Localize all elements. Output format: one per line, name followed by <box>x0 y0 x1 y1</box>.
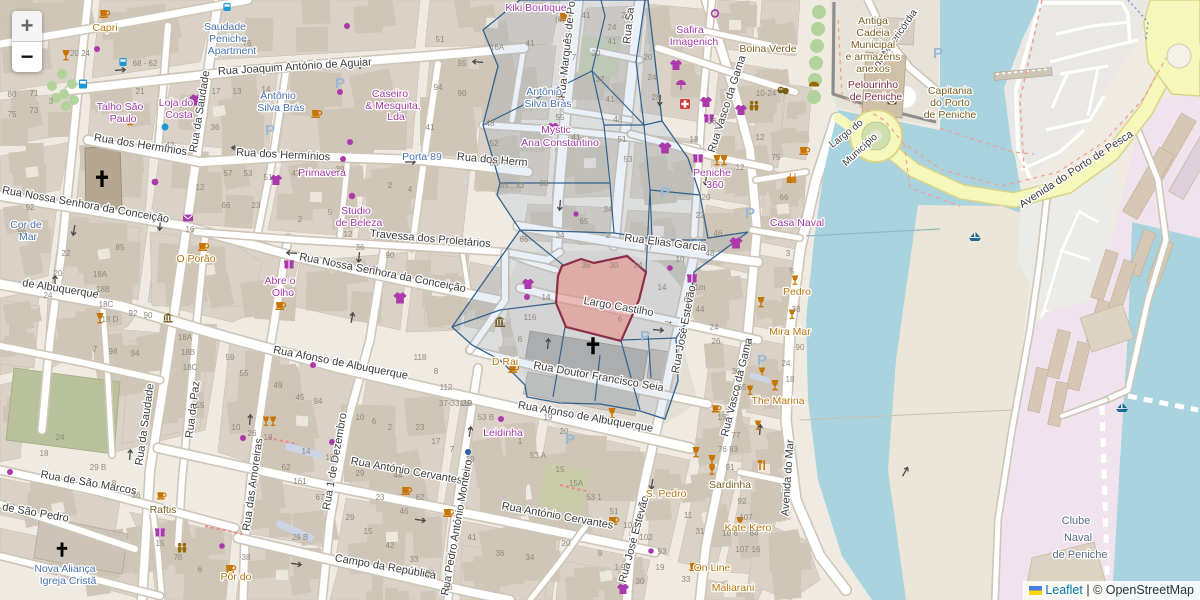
svg-text:29: 29 <box>346 513 355 522</box>
svg-text:55: 55 <box>240 369 249 378</box>
svg-text:6: 6 <box>518 335 523 344</box>
svg-text:18C: 18C <box>99 300 114 309</box>
svg-text:P: P <box>265 122 275 139</box>
svg-text:18C: 18C <box>183 363 198 372</box>
svg-text:Boina Verde: Boina Verde <box>739 43 796 55</box>
svg-text:8: 8 <box>112 479 117 488</box>
svg-text:30: 30 <box>732 367 741 376</box>
svg-text:24: 24 <box>44 291 53 300</box>
svg-text:e armazéns: e armazéns <box>846 51 901 63</box>
svg-text:38: 38 <box>242 553 251 562</box>
svg-text:Loja do: Loja do <box>159 97 194 109</box>
svg-text:Clube: Clube <box>1062 515 1091 527</box>
svg-text:36: 36 <box>132 491 141 500</box>
svg-text:57: 57 <box>224 169 233 178</box>
svg-text:Raftis: Raftis <box>150 504 177 516</box>
svg-text:360: 360 <box>706 179 724 191</box>
svg-text:do Porto: do Porto <box>930 97 970 109</box>
svg-text:On Line: On Line <box>694 562 731 574</box>
svg-text:15: 15 <box>156 539 165 548</box>
svg-text:1: 1 <box>518 437 523 446</box>
svg-text:33: 33 <box>682 575 691 584</box>
svg-text:12: 12 <box>756 133 765 142</box>
svg-text:75: 75 <box>772 153 781 162</box>
svg-text:34: 34 <box>604 205 613 214</box>
svg-text:Saudade: Saudade <box>204 21 246 33</box>
svg-text:76 83: 76 83 <box>718 445 739 454</box>
svg-text:42: 42 <box>166 141 175 150</box>
svg-text:21: 21 <box>136 87 145 96</box>
svg-text:80: 80 <box>8 90 17 99</box>
svg-text:41: 41 <box>572 133 581 142</box>
svg-text:Peniche: Peniche <box>209 33 247 45</box>
svg-text:44: 44 <box>696 305 705 314</box>
svg-text:Porta 89: Porta 89 <box>402 151 442 163</box>
svg-text:Capri: Capri <box>92 22 117 34</box>
svg-text:20: 20 <box>644 53 653 62</box>
svg-text:18: 18 <box>264 433 273 442</box>
svg-text:2: 2 <box>606 231 611 240</box>
svg-text:Pelourinho: Pelourinho <box>848 79 898 91</box>
svg-text:Igreja Cristã: Igreja Cristã <box>40 575 97 587</box>
svg-text:98: 98 <box>109 347 118 356</box>
svg-text:Nova Aliança: Nova Aliança <box>34 563 95 575</box>
svg-text:104: 104 <box>623 521 637 530</box>
svg-text:Cadeia: Cadeia <box>856 27 889 39</box>
svg-text:de Beleza: de Beleza <box>336 217 383 229</box>
svg-text:18B: 18B <box>96 285 110 294</box>
svg-text:107: 107 <box>735 545 749 554</box>
svg-text:35 , 33: 35 , 33 <box>500 181 525 190</box>
svg-text:Kiki Boutique: Kiki Boutique <box>505 2 566 14</box>
svg-text:de Peniche: de Peniche <box>924 109 977 121</box>
svg-text:46: 46 <box>714 229 723 238</box>
svg-text:P: P <box>660 184 670 201</box>
svg-text:90: 90 <box>386 251 395 260</box>
svg-text:41: 41 <box>426 123 435 132</box>
svg-text:31: 31 <box>696 527 705 536</box>
svg-text:30: 30 <box>610 261 619 270</box>
svg-text:52: 52 <box>490 139 499 148</box>
svg-text:85: 85 <box>116 243 125 252</box>
svg-text:65: 65 <box>490 159 499 168</box>
svg-text:Sardinha: Sardinha <box>709 479 751 491</box>
svg-text:95: 95 <box>458 59 467 68</box>
svg-text:110: 110 <box>460 399 473 408</box>
svg-text:41: 41 <box>526 39 535 48</box>
svg-text:Olho: Olho <box>272 287 294 299</box>
svg-text:24: 24 <box>648 73 657 82</box>
svg-text:12: 12 <box>736 163 745 172</box>
svg-text:Pedro: Pedro <box>783 286 811 298</box>
svg-text:37: 37 <box>596 75 605 84</box>
svg-text:90: 90 <box>458 89 467 98</box>
svg-text:36: 36 <box>211 123 220 132</box>
svg-text:14: 14 <box>302 447 311 456</box>
svg-text:Pôr do: Pôr do <box>221 571 252 583</box>
svg-text:6: 6 <box>618 315 623 324</box>
svg-text:20 24: 20 24 <box>70 49 91 58</box>
svg-text:7: 7 <box>572 53 577 62</box>
svg-text:11: 11 <box>684 511 693 520</box>
svg-text:17: 17 <box>432 437 441 446</box>
svg-text:33: 33 <box>410 555 419 564</box>
svg-text:36: 36 <box>582 261 591 270</box>
svg-text:94: 94 <box>131 349 140 358</box>
svg-text:22: 22 <box>62 249 71 258</box>
svg-text:62: 62 <box>282 463 291 472</box>
svg-text:4: 4 <box>408 185 413 194</box>
svg-text:2: 2 <box>388 423 393 432</box>
svg-text:28: 28 <box>652 93 661 102</box>
svg-text:→: → <box>662 314 675 328</box>
svg-text:47: 47 <box>292 169 301 178</box>
svg-text:P: P <box>335 75 345 92</box>
svg-text:18: 18 <box>40 449 49 458</box>
svg-text:Naval: Naval <box>1064 532 1092 544</box>
svg-text:20: 20 <box>560 427 569 436</box>
svg-text:48: 48 <box>614 115 623 124</box>
svg-text:36: 36 <box>792 305 801 314</box>
svg-text:16A: 16A <box>490 43 505 52</box>
svg-text:34: 34 <box>556 231 565 240</box>
svg-text:2: 2 <box>298 215 303 224</box>
svg-text:15: 15 <box>196 401 205 410</box>
svg-text:10: 10 <box>232 423 241 432</box>
svg-text:Abre o: Abre o <box>265 275 296 287</box>
svg-text:Studio: Studio <box>341 205 371 217</box>
svg-text:55: 55 <box>556 113 565 122</box>
svg-text:10: 10 <box>326 453 335 462</box>
svg-text:Municipal: Municipal <box>851 39 895 51</box>
svg-text:20: 20 <box>622 11 631 20</box>
svg-text:15A: 15A <box>569 479 584 488</box>
svg-text:18: 18 <box>690 135 699 144</box>
svg-text:9: 9 <box>598 549 603 558</box>
svg-text:92: 92 <box>738 497 747 506</box>
svg-text:53 1: 53 1 <box>586 493 602 502</box>
svg-text:161: 161 <box>293 477 307 486</box>
svg-text:92: 92 <box>129 309 138 318</box>
svg-text:65: 65 <box>580 217 589 226</box>
svg-text:64: 64 <box>750 529 759 538</box>
svg-text:59: 59 <box>226 353 235 362</box>
svg-text:94: 94 <box>434 83 443 92</box>
svg-text:15: 15 <box>556 465 565 474</box>
svg-text:14: 14 <box>658 283 667 292</box>
svg-text:34: 34 <box>526 553 535 562</box>
svg-text:65: 65 <box>520 235 529 244</box>
svg-text:24: 24 <box>608 23 617 32</box>
svg-text:17: 17 <box>212 87 221 96</box>
svg-text:93: 93 <box>658 547 667 556</box>
svg-text:66: 66 <box>222 201 231 210</box>
svg-text:19: 19 <box>656 563 665 572</box>
svg-text:19: 19 <box>466 455 475 464</box>
svg-text:67: 67 <box>316 493 325 502</box>
svg-text:24: 24 <box>710 323 719 332</box>
svg-text:41: 41 <box>582 11 591 20</box>
svg-text:20: 20 <box>54 269 63 278</box>
svg-text:Maliarani: Maliarani <box>712 582 755 594</box>
svg-text:6: 6 <box>198 565 203 574</box>
svg-text:18: 18 <box>786 375 795 384</box>
svg-text:75: 75 <box>243 39 252 48</box>
svg-text:6: 6 <box>372 417 377 426</box>
svg-text:53 B: 53 B <box>478 413 494 422</box>
svg-text:41: 41 <box>468 533 477 542</box>
svg-text:65: 65 <box>738 383 747 392</box>
svg-text:30: 30 <box>636 577 645 586</box>
svg-text:14: 14 <box>262 85 271 94</box>
svg-text:10-24: 10-24 <box>756 89 777 98</box>
svg-text:42: 42 <box>386 541 395 550</box>
svg-text:14: 14 <box>542 293 551 302</box>
svg-text:107: 107 <box>739 513 753 522</box>
svg-text:S. Pedro: S. Pedro <box>646 488 687 500</box>
svg-text:90: 90 <box>796 343 805 352</box>
svg-text:51: 51 <box>436 35 445 44</box>
svg-text:P: P <box>933 45 943 62</box>
svg-text:1m: 1m <box>694 283 705 292</box>
svg-text:20: 20 <box>592 49 601 58</box>
svg-text:Capitania: Capitania <box>928 85 973 97</box>
svg-text:de Peniche: de Peniche <box>1052 549 1107 561</box>
svg-text:16: 16 <box>186 225 195 234</box>
svg-text:10 6: 10 6 <box>722 529 738 538</box>
svg-text:16: 16 <box>708 117 717 126</box>
svg-text:30: 30 <box>426 569 435 578</box>
svg-text:20: 20 <box>702 193 711 202</box>
svg-text:23: 23 <box>416 423 425 432</box>
svg-text:90: 90 <box>144 311 153 320</box>
svg-text:P: P <box>757 352 767 369</box>
svg-text:53 A: 53 A <box>530 451 547 460</box>
svg-text:48: 48 <box>486 119 495 128</box>
svg-text:Talho São: Talho São <box>97 101 144 113</box>
svg-text:18A: 18A <box>178 333 193 342</box>
svg-text:29: 29 <box>356 469 365 478</box>
svg-text:Mira Mar: Mira Mar <box>769 326 811 338</box>
svg-text:71: 71 <box>30 89 39 98</box>
svg-text:20: 20 <box>562 539 571 548</box>
svg-text:46: 46 <box>400 507 409 516</box>
svg-text:51: 51 <box>618 135 627 144</box>
svg-text:36: 36 <box>496 549 505 558</box>
svg-text:77: 77 <box>732 431 741 440</box>
svg-text:53: 53 <box>624 155 633 164</box>
svg-text:102: 102 <box>639 533 653 542</box>
svg-text:12: 12 <box>344 230 353 239</box>
svg-text:10: 10 <box>676 255 685 264</box>
svg-text:118: 118 <box>414 353 427 362</box>
svg-text:1 9: 1 9 <box>614 563 626 572</box>
svg-text:29 B: 29 B <box>292 533 308 542</box>
svg-text:41: 41 <box>606 95 615 104</box>
svg-text:29 B: 29 B <box>90 463 106 472</box>
svg-text:24: 24 <box>782 359 791 368</box>
svg-text:Silva Brás: Silva Brás <box>257 102 304 114</box>
svg-text:24: 24 <box>56 433 65 442</box>
svg-text:3: 3 <box>49 97 54 106</box>
svg-text:The Marina: The Marina <box>751 395 804 407</box>
svg-text:2: 2 <box>388 181 393 190</box>
svg-text:51: 51 <box>610 507 619 516</box>
svg-text:45: 45 <box>296 393 305 402</box>
svg-text:Paulo: Paulo <box>110 113 137 125</box>
svg-text:75: 75 <box>8 110 17 119</box>
svg-text:Antiga: Antiga <box>858 15 888 27</box>
svg-text:3: 3 <box>786 249 791 258</box>
svg-text:53: 53 <box>244 169 253 178</box>
svg-text:Peniche: Peniche <box>693 167 731 179</box>
svg-text:08: 08 <box>540 179 549 188</box>
svg-text:23: 23 <box>252 201 261 210</box>
svg-text:112: 112 <box>440 383 453 392</box>
svg-text:P: P <box>745 205 755 222</box>
svg-text:7: 7 <box>93 345 98 354</box>
svg-text:62: 62 <box>416 493 425 502</box>
svg-text:Safira: Safira <box>676 24 704 36</box>
svg-text:26: 26 <box>248 429 257 438</box>
svg-text:22: 22 <box>696 211 705 220</box>
svg-text:19: 19 <box>544 413 553 422</box>
svg-text:Casa Naval: Casa Naval <box>770 217 824 229</box>
svg-text:24: 24 <box>634 261 643 270</box>
svg-text:de Peniche: de Peniche <box>850 91 903 103</box>
svg-text:10: 10 <box>356 413 365 422</box>
svg-text:36: 36 <box>356 243 365 252</box>
svg-text:116: 116 <box>524 313 537 322</box>
svg-text:5: 5 <box>328 208 333 217</box>
svg-text:13: 13 <box>233 87 242 96</box>
svg-text:15: 15 <box>364 527 373 536</box>
svg-text:Mystic: Mystic <box>541 124 571 136</box>
svg-text:26: 26 <box>712 337 721 346</box>
svg-text:Silva Brás: Silva Brás <box>524 98 571 110</box>
svg-text:73: 73 <box>30 106 39 115</box>
svg-text:44: 44 <box>394 471 403 480</box>
svg-text:68 - 62: 68 - 62 <box>133 59 158 68</box>
svg-text:D Rai: D Rai <box>492 356 518 368</box>
svg-text:Caseiro: Caseiro <box>372 88 408 100</box>
svg-text:92: 92 <box>26 203 35 212</box>
svg-text:Costa: Costa <box>165 109 193 121</box>
svg-text:94: 94 <box>314 397 323 406</box>
svg-text:18 D: 18 D <box>102 315 119 324</box>
svg-text:48: 48 <box>706 249 715 258</box>
svg-text:Ana Constantino: Ana Constantino <box>521 137 599 149</box>
svg-text:91: 91 <box>726 463 735 472</box>
svg-text:7: 7 <box>174 553 179 562</box>
svg-text:66: 66 <box>780 193 789 202</box>
svg-text:51: 51 <box>556 93 565 102</box>
svg-text:7: 7 <box>450 445 455 454</box>
svg-text:Lda: Lda <box>387 111 405 123</box>
svg-text:O Porão: O Porão <box>176 253 215 265</box>
svg-text:Imagenich: Imagenich <box>670 36 719 48</box>
svg-text:49: 49 <box>274 381 283 390</box>
svg-text:51: 51 <box>264 173 273 182</box>
svg-text:8: 8 <box>434 367 439 376</box>
svg-text:6: 6 <box>684 295 689 304</box>
svg-text:8: 8 <box>178 553 183 562</box>
svg-text:23: 23 <box>376 493 385 502</box>
svg-text:18A: 18A <box>93 270 108 279</box>
svg-text:17: 17 <box>644 243 653 252</box>
svg-text:16: 16 <box>744 339 753 348</box>
svg-text:41: 41 <box>608 37 617 46</box>
svg-text:36: 36 <box>444 583 453 592</box>
svg-text:5: 5 <box>790 267 795 276</box>
svg-text:12: 12 <box>196 183 205 192</box>
svg-text:P: P <box>640 328 650 345</box>
svg-text:anexos: anexos <box>856 63 890 75</box>
svg-text:18B: 18B <box>181 348 195 357</box>
svg-text:39: 39 <box>336 165 345 174</box>
svg-text:(6): (6) <box>555 15 565 24</box>
svg-text:15: 15 <box>718 413 727 422</box>
svg-text:96: 96 <box>18 227 27 236</box>
svg-text:16: 16 <box>752 545 761 554</box>
